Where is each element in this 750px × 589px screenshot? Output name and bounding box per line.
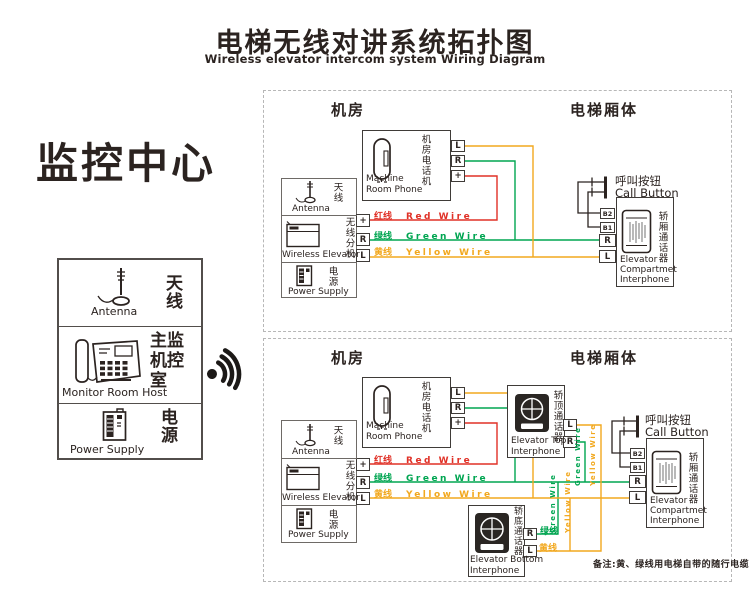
terminal-b2: B2 [600,208,615,219]
wire-label-yellow: 黄线Yellow Wire [374,487,493,500]
top-interphone-label-en1: Elevator Top [511,436,566,447]
terminal-plus: + [451,170,465,182]
wire-label-green: 绿线Green Wire [374,229,488,242]
divider [281,458,357,459]
compartment-label-en3: Interphone [650,516,707,526]
speaker-icon [474,512,510,554]
terminal-r: R [599,234,616,247]
divider [281,505,357,506]
wire-label-red: 红线Red Wire [374,453,472,466]
terminal-l: L [451,140,465,152]
unit-power-zh: 电源 [326,509,337,530]
unit-power-en: Power Supply [288,530,349,541]
terminal-b1: B1 [600,222,615,233]
terminal-r: R [523,528,537,540]
divider [281,262,357,263]
terminal-l: L [629,491,646,504]
compartment-label-en1: Elevator [650,496,707,506]
machine-room-phone-label-en1: Machine [366,421,422,432]
wire-label-yellow: 黄线Yellow Wire [374,245,493,258]
terminal-r: R [356,476,370,489]
unit-antenna-en: Antenna [292,204,330,215]
speaker-icon [514,393,550,433]
vertical-label-yellow-wire: Yellow Wire [589,423,597,486]
terminal-r: R [451,402,465,414]
unit-antenna-zh: 天线 [331,425,342,446]
wireless-unit-icon [286,464,320,491]
terminal-l: L [599,250,616,263]
wire-label-yellow-short: 黄线 [539,541,557,554]
machine-room-phone-label-en1: Machine [366,174,422,185]
terminal-plus: + [356,458,370,471]
bottom-interphone-label-zh: 轿底通话器 [511,506,524,556]
unit-label-en: Wireless Elevator [282,250,360,261]
wire-label-green: 绿线Green Wire [374,471,488,484]
divider [281,215,357,216]
vertical-label-green-wire: Green Wire [549,474,557,533]
wireless-unit-icon [286,221,320,248]
top-interphone-label-en2: Interphone [511,447,566,458]
unit-power-zh: 电源 [326,266,337,287]
machine-room-phone-label-en2: Room Phone [366,185,422,196]
machine-room-phone-label-en2: Room Phone [366,432,422,443]
interphone-icon [651,450,682,495]
compartment-label-en2: Compartmet [650,506,707,516]
bottom-interphone-label-en1: Elevator Bottom [470,555,543,566]
antenna-icon [294,423,320,449]
terminal-r: R [451,155,465,167]
compartment-label-en3: Interphone [620,275,677,285]
unit-power-en: Power Supply [288,287,349,298]
terminal-r: R [629,475,646,488]
power-supply-icon [296,264,313,287]
terminal-plus: + [451,417,465,429]
terminal-r: R [356,233,370,246]
terminal-b1: B1 [630,462,645,473]
compartment-label-en1: Elevator [620,255,677,265]
terminal-b2: B2 [630,448,645,459]
vertical-label-yellow-wire: Yellow Wire [564,470,572,533]
interphone-icon [621,209,652,254]
terminal-l: L [451,387,465,399]
vertical-label-green-wire: Green Wire [574,427,582,486]
bottom-interphone-label-en2: Interphone [470,566,543,577]
wire-label-red: 红线Red Wire [374,209,472,222]
power-supply-icon [296,507,313,530]
unit-antenna-en: Antenna [292,447,330,458]
unit-antenna-zh: 天线 [331,182,342,203]
wiring-diagram: 电梯无线对讲系统拓扑图 Wireless elevator intercom s… [0,0,750,589]
compartment-label-en2: Compartmet [620,265,677,275]
unit-label-en: Wireless Elevator [282,493,360,504]
antenna-icon [294,180,320,206]
terminal-plus: + [356,214,370,227]
top-interphone-label-zh: 轿顶通话器 [551,390,562,443]
